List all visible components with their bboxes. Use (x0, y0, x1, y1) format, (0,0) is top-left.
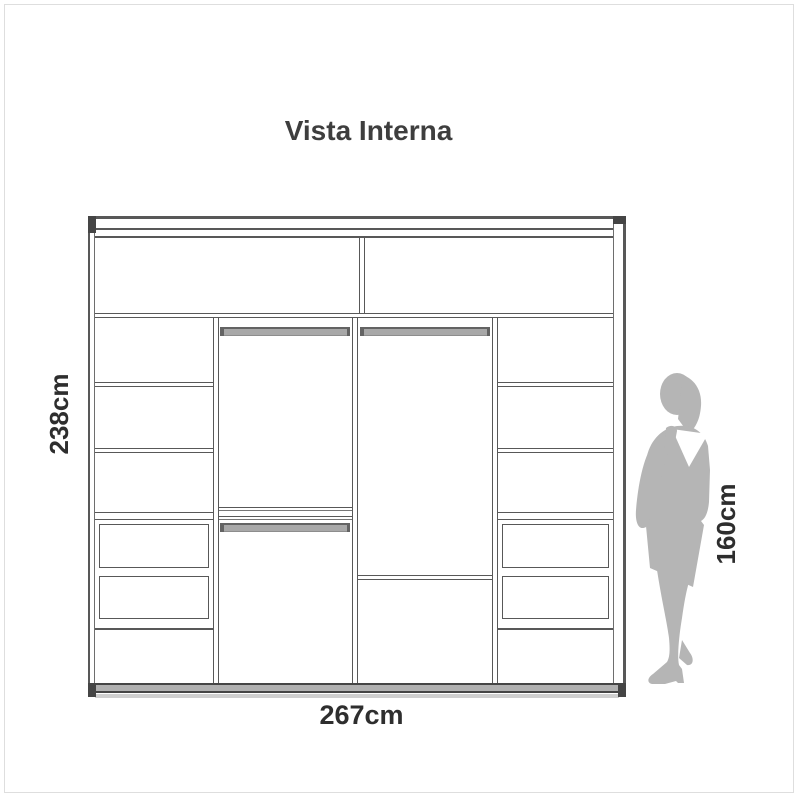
legs (648, 570, 689, 684)
drawer (99, 576, 209, 619)
wardrobe-base (90, 683, 624, 693)
shelf-line (219, 516, 352, 520)
woman-silhouette-icon (633, 370, 713, 690)
hanging-rod (360, 327, 490, 336)
diagram-title: Vista Interna (0, 115, 737, 147)
shelf-line (498, 628, 613, 630)
drawer (502, 576, 609, 619)
height-dimension-label: 238cm (44, 354, 74, 474)
wardrobe-base-shadow (95, 694, 619, 698)
shelf (95, 512, 213, 520)
drawer (99, 524, 209, 568)
divider-1 (213, 318, 219, 683)
right-corner-cap (613, 216, 626, 224)
top-rail-line (95, 228, 613, 230)
shelf (498, 382, 613, 387)
shelf (498, 448, 613, 453)
wardrobe-top-edge (88, 216, 626, 219)
left-corner-cap (88, 216, 96, 233)
shelf (498, 512, 613, 520)
person-height-dimension-label: 160cm (711, 464, 741, 584)
shelf-line (95, 628, 213, 630)
wardrobe-right-wall (613, 216, 626, 693)
hanging-rod (220, 327, 350, 336)
wardrobe-left-wall (88, 216, 95, 693)
top-section-divider (359, 238, 365, 313)
shelf (95, 448, 213, 453)
shelf (95, 382, 213, 387)
top-rail-line (95, 236, 613, 238)
width-dimension-label: 267cm (0, 700, 723, 730)
left-foot (88, 683, 96, 697)
back-foot (679, 640, 693, 665)
shelf-line (219, 507, 352, 511)
hanging-rod (220, 523, 350, 532)
shelf (358, 575, 492, 580)
right-foot (618, 683, 626, 697)
divider-2 (352, 318, 358, 683)
drawer (502, 524, 609, 568)
wardrobe-diagram (88, 216, 626, 698)
